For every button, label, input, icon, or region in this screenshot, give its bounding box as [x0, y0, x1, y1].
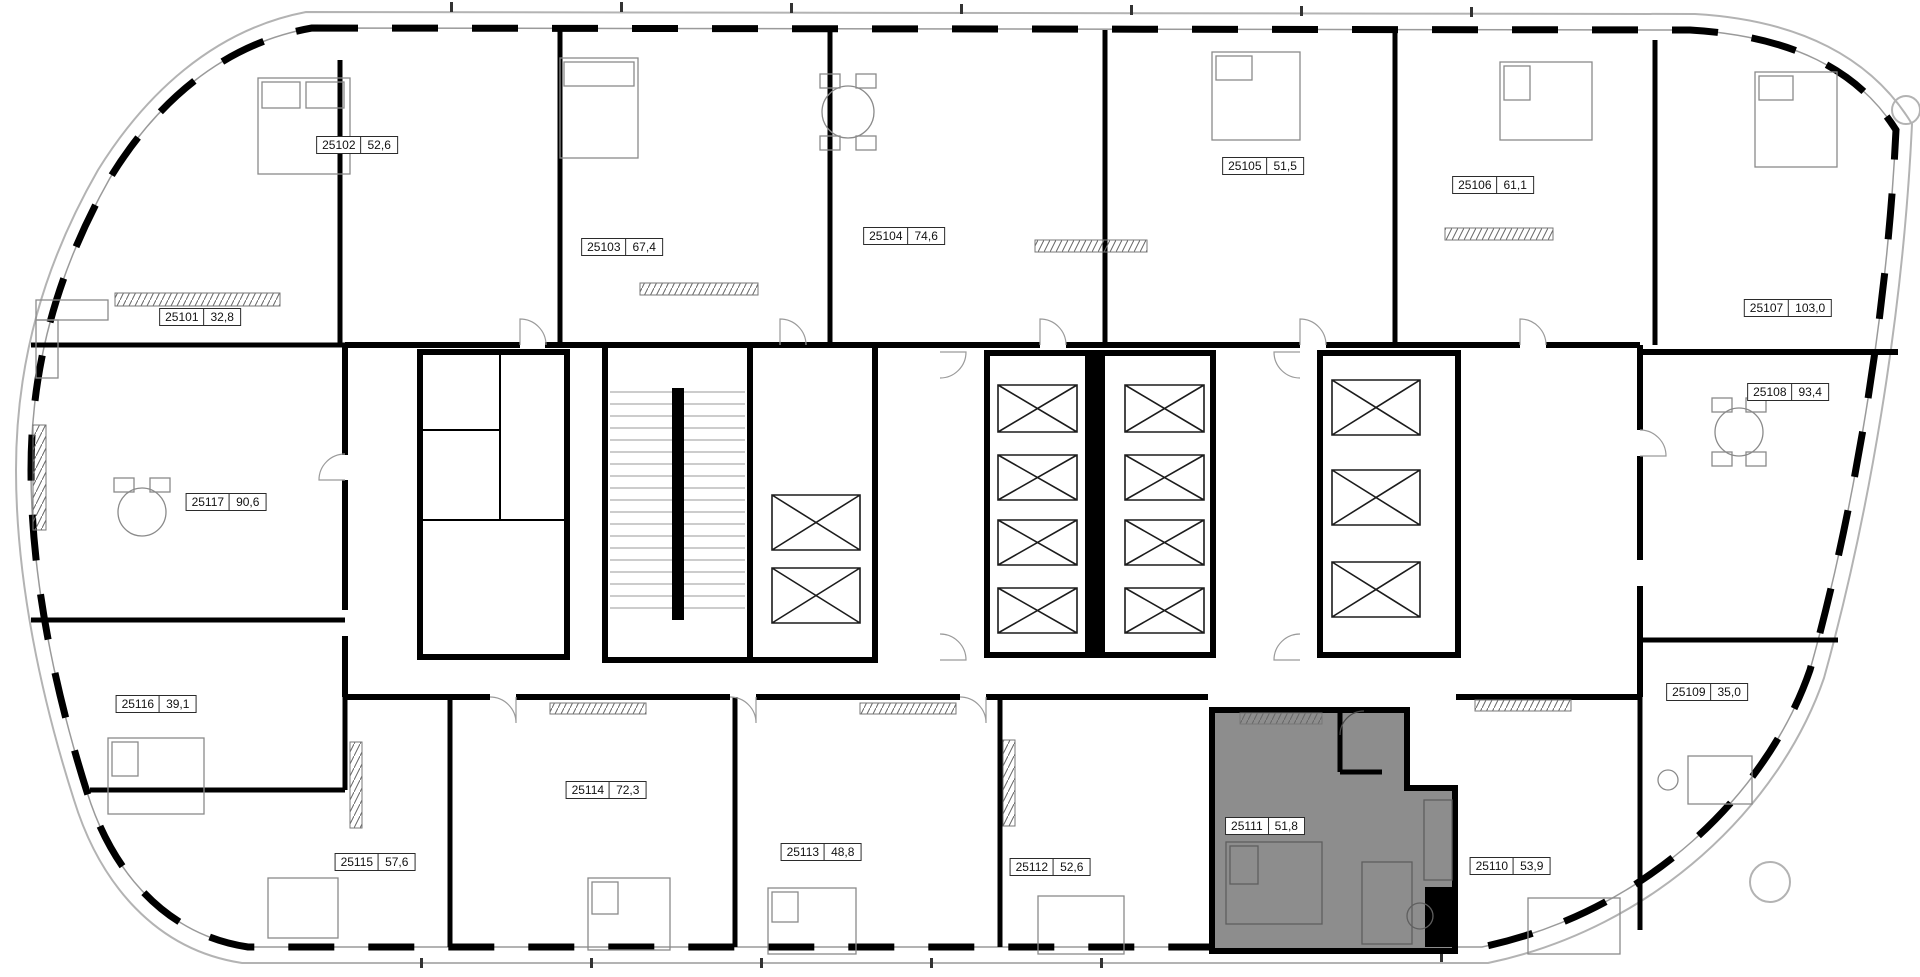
unit-number: 25101 [160, 309, 204, 325]
unit-number: 25111 [1226, 818, 1269, 834]
unit-label-25110[interactable]: 25110 53,9 [1470, 857, 1551, 875]
unit-area: 57,6 [379, 854, 414, 870]
stair-divider [672, 388, 684, 620]
unit-number: 25114 [567, 782, 610, 798]
bed [560, 58, 638, 158]
bed [1500, 62, 1592, 140]
unit-number: 25107 [1745, 300, 1789, 316]
unit-number: 25106 [1453, 177, 1497, 193]
unit-label-25112[interactable]: 25112 52,6 [1010, 858, 1091, 876]
unit-area: 93,4 [1793, 384, 1828, 400]
unit-number: 25103 [582, 239, 626, 255]
unit-area: 48,8 [825, 844, 860, 860]
floor-plan: 25101 32,8 25102 52,6 25103 67,4 25104 7… [0, 0, 1920, 977]
unit-number: 25113 [782, 844, 825, 860]
unit-number: 25115 [336, 854, 379, 870]
unit-label-25111[interactable]: 25111 51,8 [1225, 817, 1305, 835]
unit-label-25107[interactable]: 25107 103,0 [1744, 299, 1832, 317]
unit-area: 51,8 [1269, 818, 1304, 834]
unit-area: 32,8 [205, 309, 240, 325]
wardrobe-hatching [1240, 713, 1322, 724]
sofa [36, 300, 108, 320]
bed [258, 78, 350, 174]
unit-area: 103,0 [1789, 300, 1831, 316]
unit-area: 74,6 [909, 228, 944, 244]
unit-label-25114[interactable]: 25114 72,3 [566, 781, 647, 799]
bed [1528, 898, 1620, 954]
unit-area: 72,3 [610, 782, 645, 798]
unit-label-25109[interactable]: 25109 35,0 [1666, 683, 1748, 701]
floor-plan-canvas [0, 0, 1920, 977]
elevator-bank-right [1320, 353, 1458, 655]
balcony-bump [1750, 862, 1790, 902]
core [420, 345, 1458, 660]
unit-area: 35,0 [1712, 684, 1747, 700]
unit-area: 52,6 [1054, 859, 1089, 875]
wall-column [1425, 887, 1455, 947]
unit-number: 25108 [1748, 384, 1792, 400]
unit-label-25108[interactable]: 25108 93,4 [1747, 383, 1829, 401]
dining-table [118, 488, 166, 536]
furniture-layer [36, 52, 1837, 954]
chair [1658, 770, 1678, 790]
bed [1755, 72, 1837, 167]
unit-area: 67,4 [627, 239, 662, 255]
balcony-bump [1892, 96, 1920, 124]
unit-area: 53,9 [1514, 858, 1549, 874]
unit-number: 25116 [117, 696, 160, 712]
dining-table [1715, 408, 1763, 456]
unit-label-25113[interactable]: 25113 48,8 [781, 843, 862, 861]
elevator-bank-small [750, 345, 875, 660]
unit-number: 25117 [187, 494, 230, 510]
elevator-bank-main [987, 353, 1213, 655]
unit-label-25106[interactable]: 25106 61,1 [1452, 176, 1534, 194]
unit-divider-walls [31, 30, 1898, 947]
unit-label-25103[interactable]: 25103 67,4 [581, 238, 663, 256]
staircase [605, 345, 750, 660]
unit-area: 61,1 [1498, 177, 1533, 193]
unit-label-25105[interactable]: 25105 51,5 [1222, 157, 1304, 175]
table [268, 878, 338, 938]
unit-area: 51,5 [1268, 158, 1303, 174]
building-outline [16, 12, 1920, 963]
service-block [420, 352, 567, 657]
bed [1212, 52, 1300, 140]
unit-number: 25112 [1011, 859, 1054, 875]
unit-number: 25105 [1223, 158, 1267, 174]
unit-number: 25102 [317, 137, 361, 153]
unit-number: 25104 [864, 228, 908, 244]
unit-label-25115[interactable]: 25115 57,6 [335, 853, 416, 871]
unit-number: 25109 [1667, 684, 1711, 700]
unit-label-25102[interactable]: 25102 52,6 [316, 136, 398, 154]
unit-label-25117[interactable]: 25117 90,6 [186, 493, 267, 511]
unit-area: 52,6 [362, 137, 397, 153]
desk [1688, 756, 1752, 804]
unit-label-25101[interactable]: 25101 32,8 [159, 308, 241, 326]
unit-area: 39,1 [160, 696, 195, 712]
core-wall [1085, 356, 1105, 652]
unit-number: 25110 [1471, 858, 1514, 874]
unit-label-25116[interactable]: 25116 39,1 [116, 695, 197, 713]
unit-area: 90,6 [230, 494, 265, 510]
perimeter-wall [31, 28, 1896, 947]
unit-label-25104[interactable]: 25104 74,6 [863, 227, 945, 245]
